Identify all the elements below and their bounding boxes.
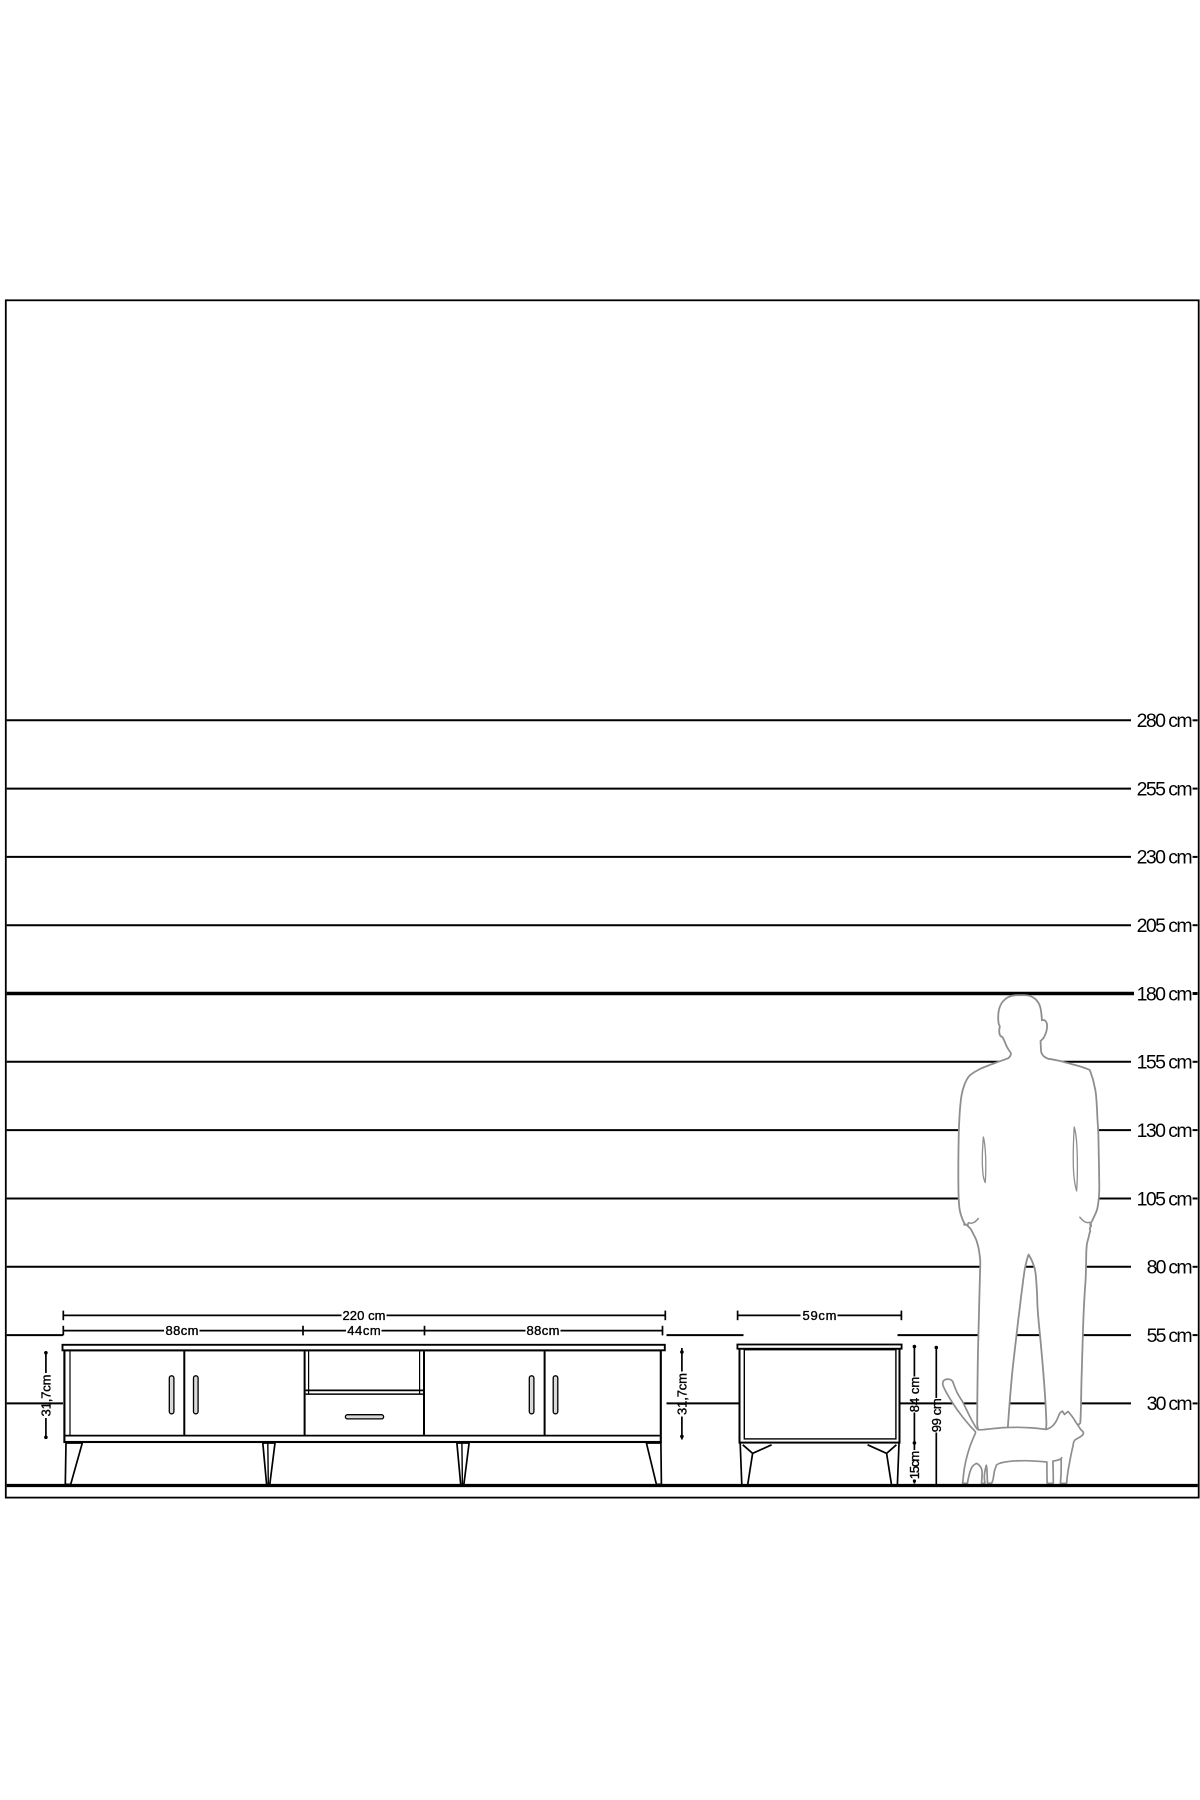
svg-text:59cm: 59cm xyxy=(803,1308,837,1323)
svg-text:155 cm: 155 cm xyxy=(1137,1052,1193,1074)
svg-text:88cm: 88cm xyxy=(166,1323,199,1338)
svg-text:15cm: 15cm xyxy=(907,1451,922,1480)
svg-text:205 cm: 205 cm xyxy=(1137,915,1193,937)
svg-text:31,7cm: 31,7cm xyxy=(674,1373,689,1415)
svg-text:80 cm: 80 cm xyxy=(1147,1257,1193,1279)
svg-text:105 cm: 105 cm xyxy=(1137,1188,1193,1210)
svg-text:130 cm: 130 cm xyxy=(1137,1120,1193,1142)
svg-text:44cm: 44cm xyxy=(347,1323,381,1338)
svg-text:255 cm: 255 cm xyxy=(1137,778,1193,800)
svg-text:31,7cm: 31,7cm xyxy=(38,1375,53,1417)
svg-text:88cm: 88cm xyxy=(527,1323,560,1338)
svg-text:230 cm: 230 cm xyxy=(1137,847,1193,869)
svg-text:55 cm: 55 cm xyxy=(1147,1325,1193,1347)
svg-text:99 cm: 99 cm xyxy=(929,1398,944,1432)
svg-text:84 cm: 84 cm xyxy=(907,1377,922,1413)
svg-text:30 cm: 30 cm xyxy=(1147,1393,1193,1415)
svg-text:280 cm: 280 cm xyxy=(1137,710,1193,732)
svg-text:180 cm: 180 cm xyxy=(1137,983,1193,1005)
svg-text:220 cm: 220 cm xyxy=(343,1308,386,1323)
